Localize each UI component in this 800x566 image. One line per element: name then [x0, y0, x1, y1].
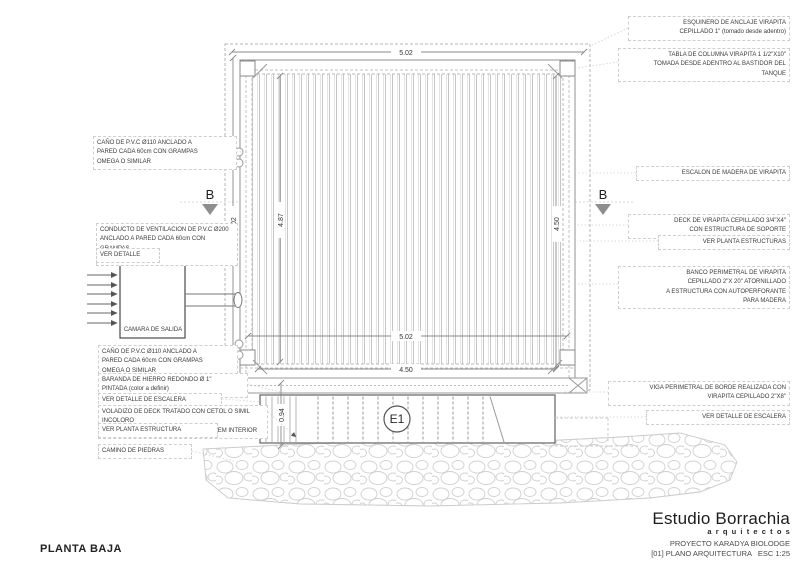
label-camino-de-piedras: CAMINO DE PIEDRAS — [98, 444, 192, 459]
page-title: PLANTA BAJA — [40, 543, 122, 555]
section-arrow-icon — [595, 204, 611, 215]
deck — [235, 60, 575, 378]
label-ver-detalle: VER DETALLE — [96, 248, 160, 263]
dim-bottom-inner: 4.50 — [399, 367, 413, 374]
label-esquinero-anclaje: ESQUINERO DE ANCLAJE VIRAPITA CEPILLADO … — [628, 16, 790, 41]
dim-stair: 0.94 — [279, 408, 286, 422]
dim-right: 4.50 — [554, 217, 561, 231]
section-marker-left-label: B — [206, 187, 215, 202]
dim-top: 5.02 — [399, 50, 413, 57]
deck-planks — [252, 74, 563, 364]
camara-de-salida-label: CAMARA DE SALIDA — [121, 327, 185, 333]
titleblock-studio-name: Estudio Borrachia — [652, 509, 790, 529]
titleblock-studio-sub: arquitectos — [707, 527, 794, 536]
section-arrow-icon — [202, 204, 218, 215]
label-banco-perimetral: BANCO PERIMETRAL DE VIRAPITA CEPILLADO 2… — [618, 266, 790, 309]
flow-arrows — [87, 275, 117, 323]
label-viga-perimetral: VIGA PERIMETRAL DE BORDE REALIZADA CON V… — [608, 381, 790, 406]
titleblock-project: PROYECTO KARADYA BIOLODGE — [670, 539, 790, 548]
drawing-sheet: E1 5.02 5.02 4.87 4.50 5.02 4.50 0.94 — [0, 0, 800, 566]
section-marker-right: B — [595, 187, 611, 215]
dim-left-inner: 4.87 — [278, 213, 285, 227]
stair-reference-label: E1 — [390, 412, 405, 426]
stairs: E1 — [233, 395, 638, 446]
label-ver-planta-estructuras: VER PLANTA ESTRUCTURAS — [658, 235, 790, 250]
label-ver-detalle-escalera-right: VER DETALLE DE ESCALERA — [646, 410, 790, 425]
label-cano-pvc-110-top: CAÑO DE P.V.C Ø110 ANCLADO A PARED CADA … — [93, 136, 237, 170]
label-escalon-madera: ESCALON DE MADERA DE VIRAPITA — [636, 166, 790, 181]
label-tabla-columna: TABLA DE COLUMNA VIRAPITA 1 1/2"X10" TOM… — [618, 48, 790, 82]
titleblock-sheet-info: [01] PLANO ARQUITECTURA ESC 1:25 — [651, 549, 790, 558]
section-marker-right-label: B — [599, 187, 608, 202]
dim-bottom: 5.02 — [399, 334, 413, 341]
perimeter-beam — [228, 378, 587, 393]
label-ver-planta-estructura: VER PLANTA ESTRUCTURA — [98, 423, 218, 438]
section-marker-left: B — [202, 187, 218, 215]
